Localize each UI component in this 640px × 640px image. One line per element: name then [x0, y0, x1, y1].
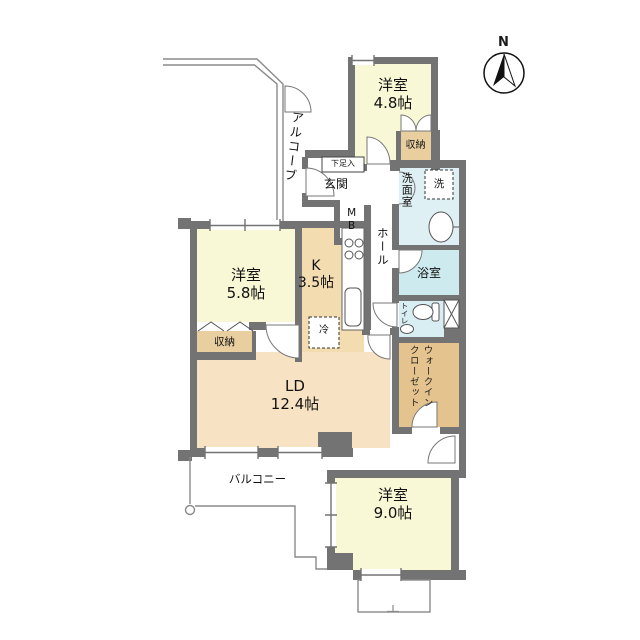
- closet-west-label: 収納: [197, 336, 252, 348]
- meter-box-label: MB: [345, 207, 358, 233]
- bedroom-west-label: 洋室 5.8帖: [197, 267, 295, 302]
- compass-icon: [484, 53, 524, 93]
- compass-north-label: N: [498, 35, 509, 50]
- refrigerator-label: 冷: [309, 325, 339, 337]
- balcony-lower-box: [358, 580, 430, 612]
- kitchen-label: K 3.5帖: [286, 258, 346, 291]
- balcony-label: バルコニー: [210, 473, 305, 487]
- washer-label: 洗: [425, 178, 453, 190]
- toilet-label: トイレ: [400, 302, 409, 325]
- walk-in-closet-label: ウォークイン クローゼット: [406, 345, 434, 427]
- entrance-label: 玄関: [314, 177, 358, 191]
- floor-plan-drawing: [0, 0, 640, 640]
- toilet-door: [373, 303, 397, 327]
- alcove-corridor-outline: [163, 59, 283, 221]
- closet-west-folding-marks: [198, 322, 253, 331]
- washroom-label: 洗面室: [400, 172, 413, 208]
- alcove-gate-door: [285, 86, 311, 112]
- bathroom-label: 浴室: [399, 266, 459, 280]
- hall-label: ホール: [375, 227, 389, 268]
- bedroom-south-label: 洋室 9.0帖: [335, 487, 451, 522]
- pipe-shaft-hatch: [444, 300, 459, 328]
- bedroom-north-label: 洋室 4.8帖: [355, 77, 431, 112]
- closet-north-label: 収納: [400, 140, 431, 152]
- living-dining-label: LD 12.4帖: [230, 378, 360, 413]
- kitchen-sink-icon: [345, 288, 361, 326]
- shoe-cabinet-label: 下足入: [322, 159, 364, 168]
- floor-plan: N 洋室 4.8帖 収納 アルコーブ 下足入 玄関 MB ホール 洗面室 洗 浴…: [0, 0, 640, 640]
